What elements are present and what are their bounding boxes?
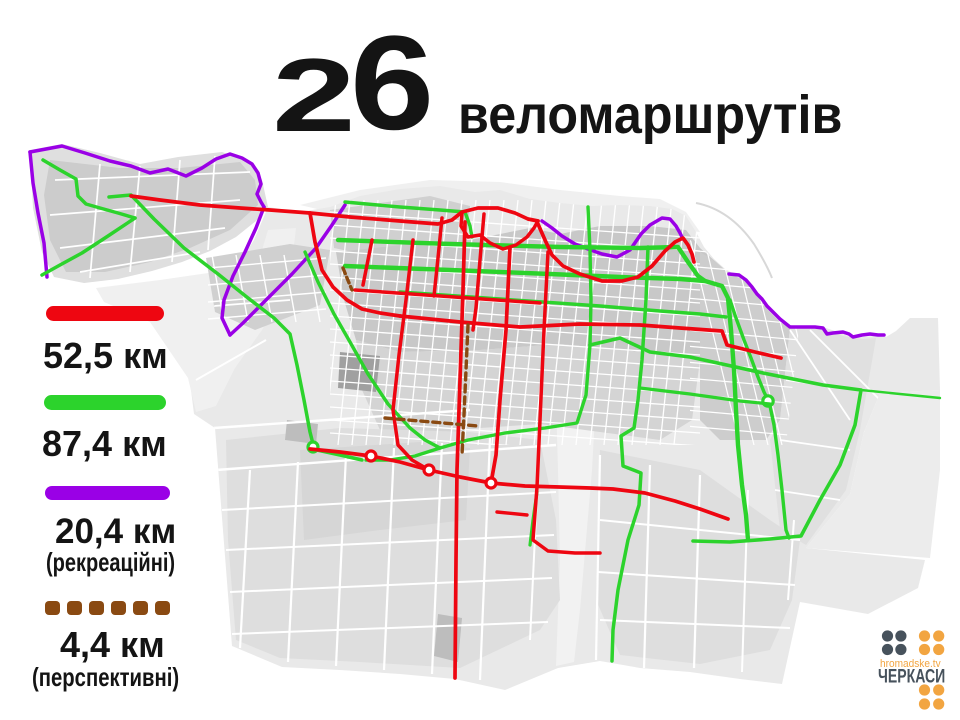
svg-text:ЧЕРКАСИ: ЧЕРКАСИ xyxy=(878,665,945,687)
